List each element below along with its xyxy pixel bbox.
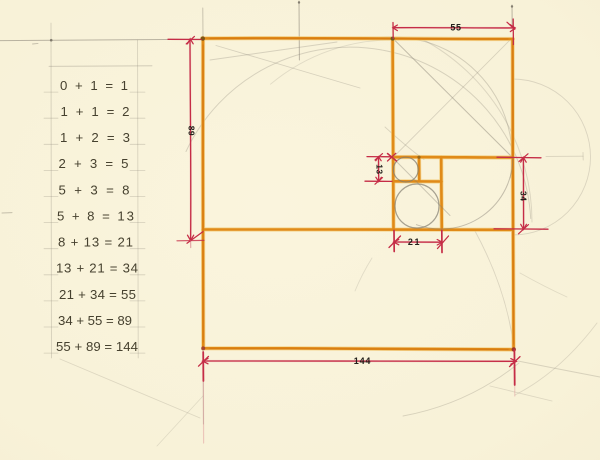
svg-text:55 + 89 = 144: 55 + 89 = 144 <box>56 339 138 354</box>
svg-text:34: 34 <box>519 191 529 201</box>
svg-text:34 + 55 = 89: 34 + 55 = 89 <box>58 313 132 328</box>
svg-text:2 + 3 = 5: 2 + 3 = 5 <box>59 156 129 171</box>
svg-text:1 + 1 = 2: 1 + 1 = 2 <box>61 104 130 119</box>
svg-text:8 + 13 = 21: 8 + 13 = 21 <box>58 235 133 250</box>
svg-text:5 + 8 = 13: 5 + 8 = 13 <box>57 209 134 224</box>
svg-text:144: 144 <box>354 356 371 366</box>
svg-text:21 + 34 = 55: 21 + 34 = 55 <box>59 287 136 302</box>
svg-text:55: 55 <box>450 23 461 33</box>
svg-text:89: 89 <box>187 126 197 136</box>
svg-text:21: 21 <box>408 237 421 247</box>
svg-text:0 + 1 = 1: 0 + 1 = 1 <box>60 78 128 93</box>
svg-text:13 + 21 = 34: 13 + 21 = 34 <box>56 261 138 276</box>
svg-text:5 + 3 = 8: 5 + 3 = 8 <box>59 183 130 198</box>
svg-text:13: 13 <box>374 164 384 174</box>
svg-text:1 + 2 = 3: 1 + 2 = 3 <box>60 130 130 145</box>
